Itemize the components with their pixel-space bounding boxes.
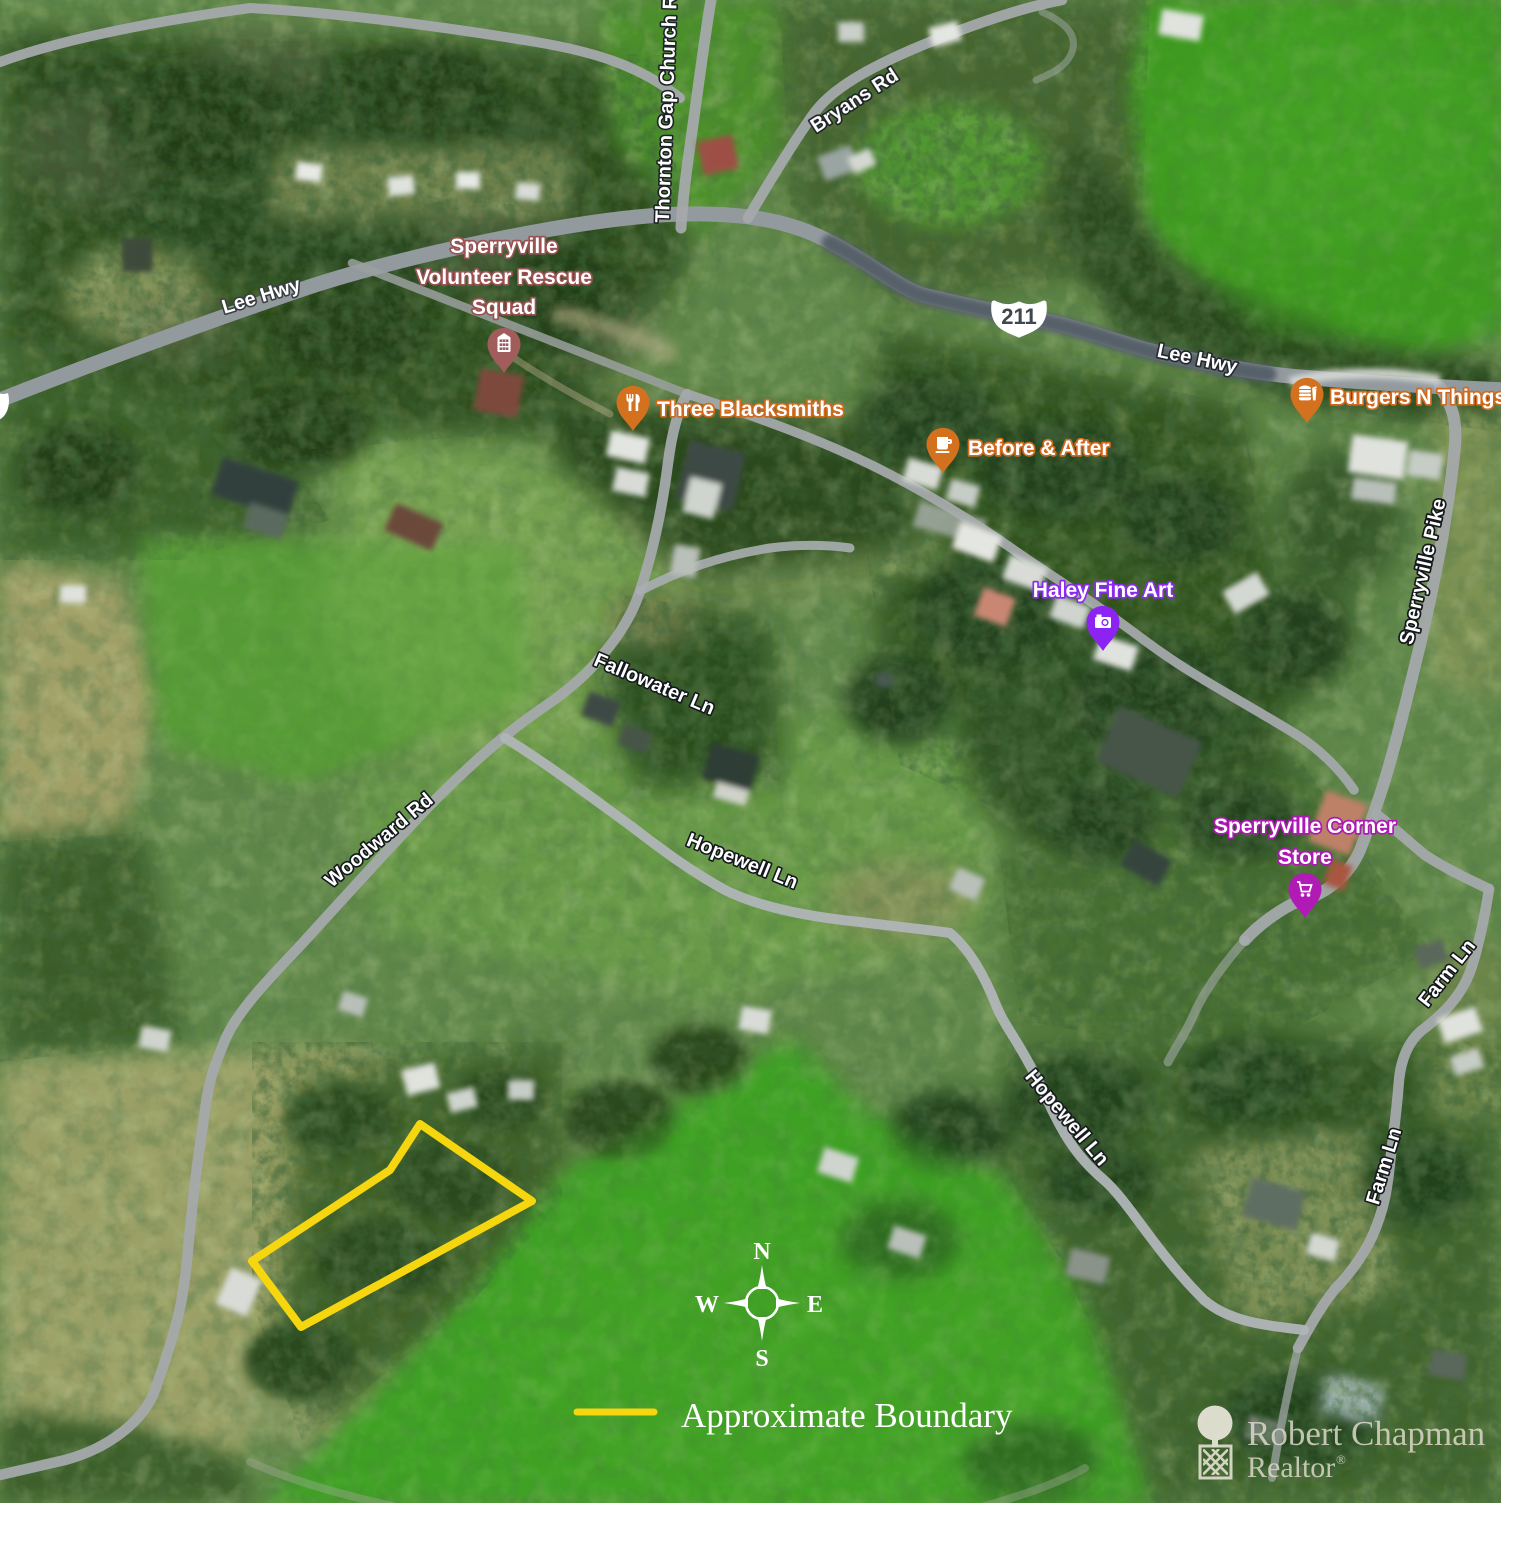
svg-text:S: S (755, 1346, 768, 1372)
svg-text:Volunteer Rescue: Volunteer Rescue (416, 266, 592, 289)
svg-text:®: ® (1336, 1452, 1346, 1467)
svg-text:Squad: Squad (472, 296, 536, 319)
svg-text:Store: Store (1278, 846, 1332, 869)
svg-text:Approximate Boundary: Approximate Boundary (681, 1396, 1013, 1435)
svg-text:E: E (807, 1292, 823, 1318)
svg-text:211: 211 (1001, 304, 1037, 329)
svg-text:Realtor: Realtor (1247, 1451, 1335, 1484)
svg-text:Burgers N Things: Burgers N Things (1330, 386, 1506, 409)
svg-text:Sperryville: Sperryville (450, 235, 557, 258)
svg-text:Haley Fine Art: Haley Fine Art (1033, 579, 1173, 602)
svg-text:N: N (753, 1239, 771, 1265)
svg-text:Sperryville Corner: Sperryville Corner (1214, 815, 1396, 838)
svg-text:W: W (695, 1292, 719, 1318)
svg-text:Three Blacksmiths: Three Blacksmiths (657, 398, 844, 421)
svg-text:Before & After: Before & After (968, 437, 1110, 460)
svg-text:Robert Chapman: Robert Chapman (1247, 1414, 1485, 1453)
